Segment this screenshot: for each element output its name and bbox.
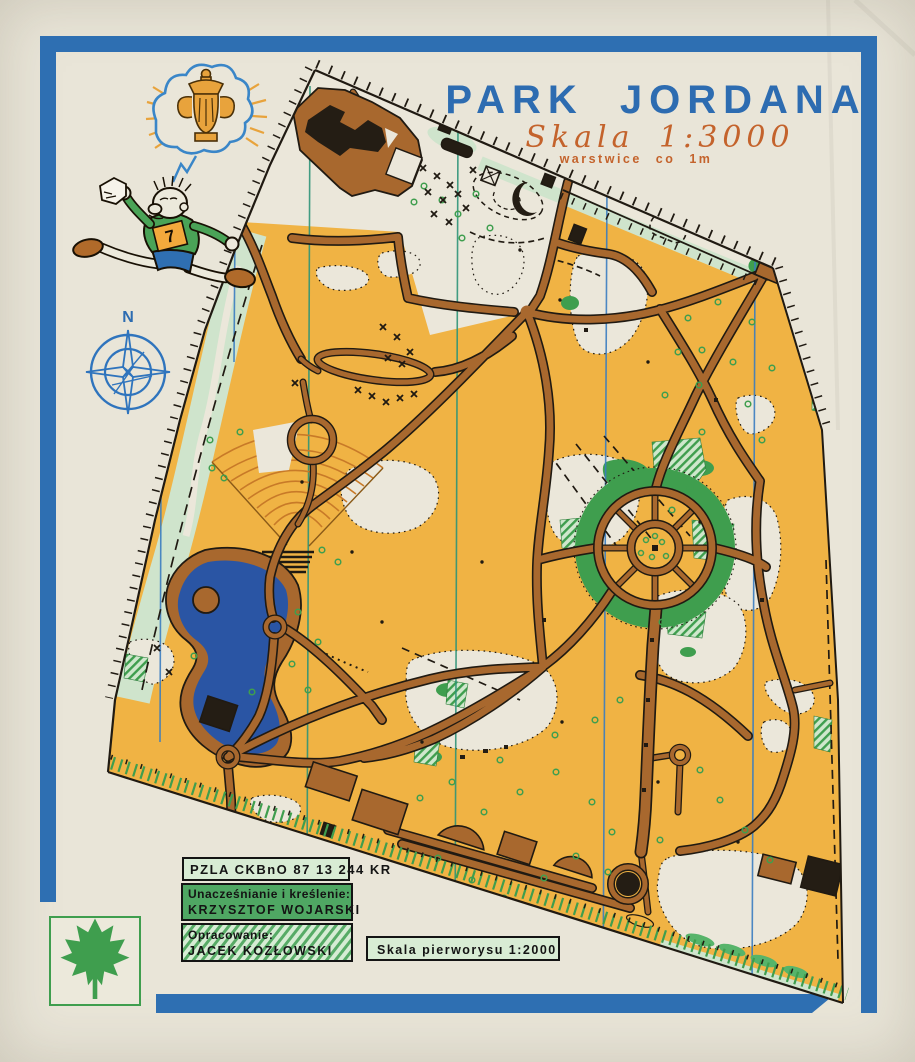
- credits-box-compilation: Opracowanie: JACEK KOZŁOWSKI: [182, 924, 352, 961]
- contour-note: warstwice co 1m: [559, 152, 713, 166]
- credits-code-text: PZLA CKBnO 87 13 244 KR: [190, 862, 392, 877]
- sheet-canvas: PARK JORDANA Skala 1:3000 warstwice co 1…: [0, 0, 915, 1062]
- mascot: [146, 65, 267, 182]
- runner-head: [149, 176, 192, 219]
- credits-box-drafting: Unacześnianie i kreślenie: KRZYSZTOF WOJ…: [182, 884, 361, 920]
- mascot-runner: 7: [72, 176, 257, 289]
- credits-drafting-label: Unacześnianie i kreślenie:: [188, 887, 350, 901]
- credits-box-source-scale: Skala pierworysu 1:2000: [367, 937, 559, 960]
- map-sheet: PARK JORDANA Skala 1:3000 warstwice co 1…: [0, 0, 915, 1062]
- credits-drafting-name: KRZYSZTOF WOJARSKI: [188, 903, 361, 917]
- scale-label: Skala 1:3000: [525, 120, 794, 155]
- frame-bottom: [156, 994, 835, 1013]
- credits-compilation-label: Opracowanie:: [188, 928, 273, 942]
- credits-compilation-name: JACEK KOZŁOWSKI: [188, 944, 333, 958]
- bubble-tail: [173, 156, 196, 182]
- runner-cloth: [100, 178, 126, 204]
- frame-top: [40, 36, 877, 52]
- pond-island: [193, 587, 219, 613]
- frame-left: [40, 36, 56, 902]
- page-title: PARK JORDANA: [445, 78, 866, 122]
- logo-box: [50, 917, 140, 1005]
- credits-box-code: PZLA CKBnO 87 13 244 KR: [183, 858, 392, 880]
- frame-right: [861, 36, 877, 1013]
- compass-rose: N: [86, 309, 170, 414]
- compass-north-label: N: [122, 309, 134, 326]
- credits-source-scale-text: Skala pierworysu 1:2000: [377, 943, 557, 957]
